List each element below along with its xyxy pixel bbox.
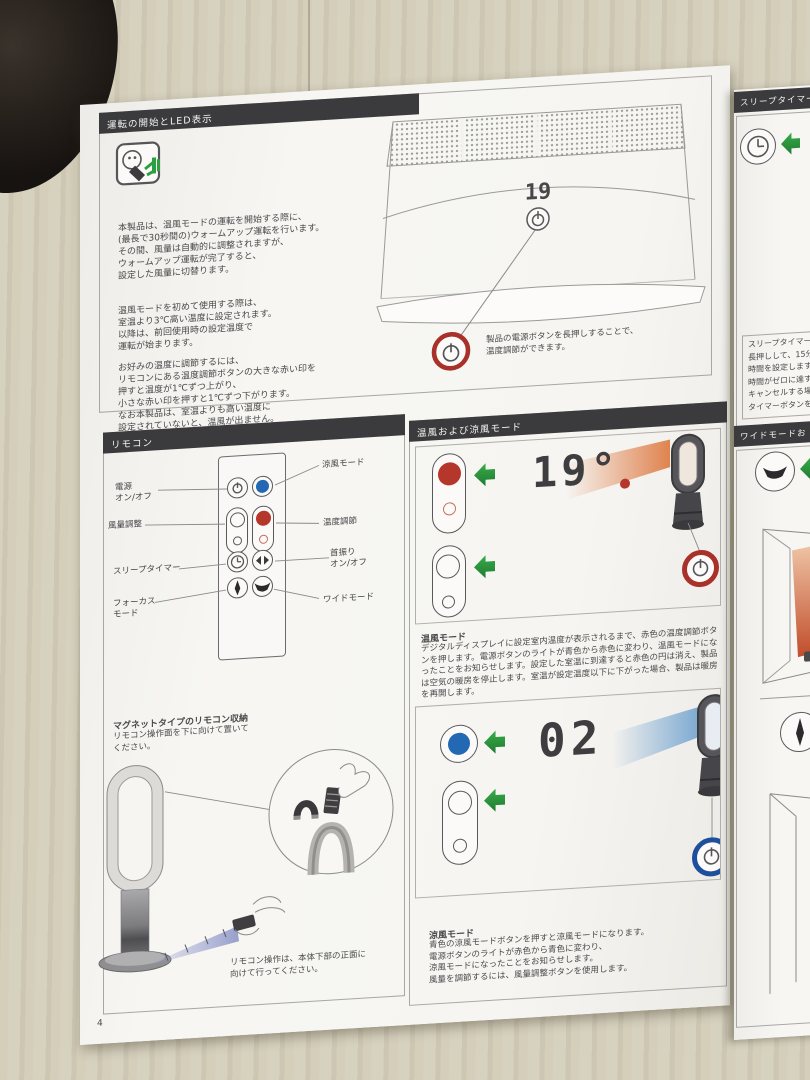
section-sleep-title-bar: スリープタイマー (734, 85, 810, 113)
plug-icon (115, 140, 165, 189)
heater-display-value: 19 (525, 179, 551, 206)
cool-mode-display: 02 (538, 710, 603, 768)
power-button-callout-ring (434, 333, 468, 369)
power-icon (690, 556, 711, 578)
tower-fan-illustration (99, 763, 171, 973)
focus-mode-room-illustration (764, 783, 810, 1009)
green-arrow-icon (474, 555, 495, 579)
label-temp: 温度調節 (323, 516, 357, 529)
sleep-note-text: スリープタイマーを 長押しして、15分単 時間を設定します 時間がゼロに達す キ… (748, 333, 810, 414)
manual-page-right: スリープタイマー スリープタイマーを 長押しして、15分単 時間を設定します 時… (734, 83, 810, 1040)
power-icon (527, 207, 549, 230)
green-arrow-icon (474, 463, 495, 487)
section-wide-title: ワイドモードお (740, 429, 807, 443)
label-power: 電源 オン/オフ (115, 481, 152, 505)
wide-mode-icon (254, 581, 271, 593)
green-arrow-icon (484, 730, 505, 754)
mini-heater-hot (662, 431, 714, 534)
power-icon (231, 481, 244, 495)
focus-mode-icon (794, 718, 806, 747)
display-red-dot (620, 478, 630, 489)
clock-icon (746, 134, 770, 159)
section-remote-title: リモコン (111, 438, 153, 452)
label-focus: フォーカス モード (113, 596, 156, 621)
hot-mode-illustration: 19° (415, 428, 721, 625)
callout-line (698, 796, 721, 840)
mini-fan-cool (690, 692, 721, 803)
power-icon (701, 845, 721, 867)
clock-icon (230, 554, 245, 570)
manual-page-left: 運転の開始とLED表示 本製品は、温風モードの運転を開始する際に、 (最長で30… (80, 65, 730, 1045)
hot-mode-display: 19° (532, 443, 620, 497)
cool-mode-illustration: 02 (415, 688, 721, 899)
page-number: 4 (97, 1019, 103, 1029)
wide-mode-icon (762, 465, 788, 482)
wide-mode-room-illustration (760, 521, 810, 687)
magnifier-detail (269, 746, 393, 878)
label-oscillation: 首振り オン/オフ (330, 546, 367, 570)
green-arrow-icon (484, 788, 505, 812)
photo-of-manual: { "colors":{ "header_bar":"#3b3b3d", "ac… (0, 0, 810, 1080)
label-airflow: 風量調整 (108, 519, 142, 532)
temp-down-button (259, 535, 268, 545)
airflow-down-button (233, 536, 242, 546)
focus-mode-icon (233, 580, 242, 596)
section-sleep-title: スリープタイマー (740, 94, 810, 109)
oscillation-icon (255, 553, 270, 567)
hand-with-remote (232, 896, 285, 936)
